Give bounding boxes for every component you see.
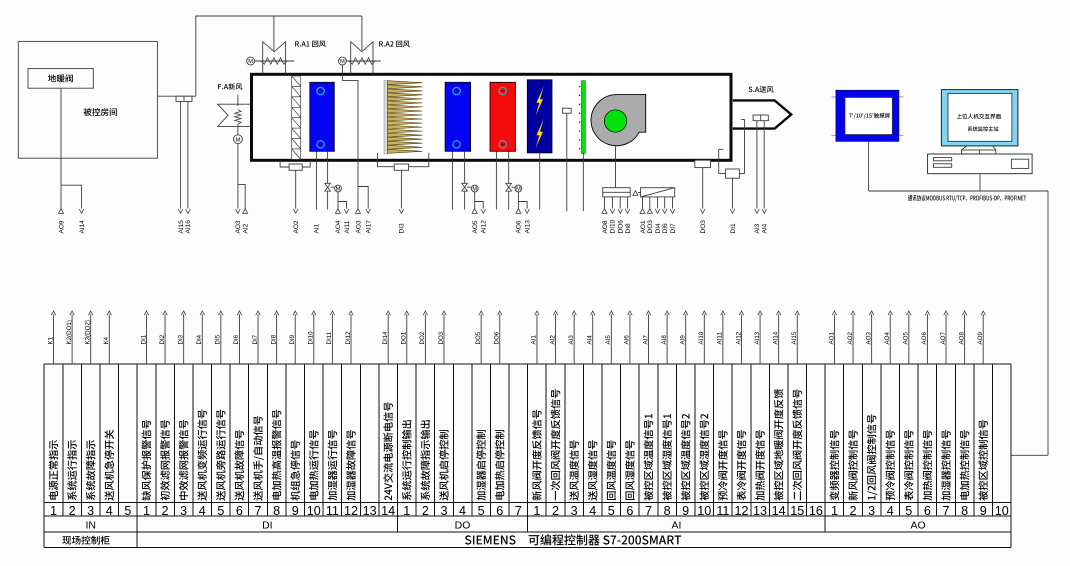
- svg-text:14: 14: [772, 504, 786, 518]
- svg-text:3: 3: [868, 504, 875, 518]
- svg-text:AO5: AO5: [903, 332, 910, 345]
- svg-text:2: 2: [850, 504, 857, 518]
- svg-text:K1: K1: [47, 336, 54, 344]
- svg-text:AO: AO: [911, 519, 926, 531]
- svg-text:AI1: AI1: [314, 223, 321, 233]
- svg-text:K4: K4: [103, 336, 110, 344]
- svg-text:5: 5: [905, 504, 912, 518]
- svg-text:AO3: AO3: [355, 220, 362, 233]
- svg-text:AO5: AO5: [472, 220, 479, 233]
- svg-text:4: 4: [106, 504, 113, 518]
- svg-text:AO1: AO1: [828, 332, 835, 345]
- svg-text:AO8: AO8: [958, 332, 965, 345]
- svg-text:1: 1: [403, 504, 410, 518]
- svg-text:DO3: DO3: [700, 220, 707, 234]
- svg-text:DI: DI: [262, 519, 273, 531]
- svg-text:M: M: [516, 187, 521, 193]
- svg-text:DI7: DI7: [670, 223, 677, 234]
- svg-text:4: 4: [459, 504, 466, 518]
- svg-text:AI8: AI8: [661, 335, 668, 345]
- svg-text:DI4: DI4: [196, 334, 203, 344]
- svg-text:AI7: AI7: [642, 335, 649, 345]
- svg-text:9: 9: [292, 504, 299, 518]
- svg-text:2: 2: [552, 504, 559, 518]
- svg-text:AO3: AO3: [865, 332, 872, 345]
- svg-text:DI5: DI5: [215, 334, 222, 344]
- svg-text:12: 12: [344, 504, 358, 518]
- svg-text:4: 4: [199, 504, 206, 518]
- svg-text:DI6: DI6: [662, 223, 669, 234]
- svg-text:DI6: DI6: [233, 334, 240, 344]
- svg-text:5: 5: [217, 504, 224, 518]
- svg-text:AI15: AI15: [178, 220, 185, 234]
- svg-text:9: 9: [682, 504, 689, 518]
- svg-text:AI15: AI15: [791, 331, 798, 344]
- svg-text:AI10: AI10: [698, 331, 705, 344]
- svg-text:8: 8: [664, 504, 671, 518]
- svg-text:AO2: AO2: [847, 332, 854, 345]
- svg-text:K3(DO2): K3(DO2): [84, 320, 91, 344]
- svg-text:AI6: AI6: [624, 335, 631, 345]
- svg-text:DI3: DI3: [177, 334, 184, 344]
- svg-text:13: 13: [753, 504, 767, 518]
- svg-text:AO4: AO4: [884, 332, 891, 345]
- svg-text:AI5: AI5: [605, 335, 612, 345]
- svg-text:AI2: AI2: [243, 223, 250, 233]
- svg-text:16: 16: [809, 504, 823, 518]
- svg-text:AI17: AI17: [366, 220, 373, 234]
- svg-text:DO3: DO3: [647, 220, 654, 234]
- svg-text:1: 1: [50, 504, 57, 518]
- svg-text:2: 2: [162, 504, 169, 518]
- svg-text:6: 6: [236, 504, 243, 518]
- svg-text:7: 7: [943, 504, 950, 518]
- svg-text:AI13: AI13: [754, 331, 761, 344]
- svg-text:6: 6: [496, 504, 503, 518]
- svg-text:AI2: AI2: [549, 335, 556, 345]
- svg-text:AO6: AO6: [516, 220, 523, 233]
- svg-text:M: M: [472, 187, 477, 193]
- svg-text:AO9: AO9: [58, 220, 65, 233]
- svg-text:AI1: AI1: [531, 335, 538, 345]
- svg-text:5: 5: [124, 504, 131, 518]
- svg-text:11: 11: [326, 504, 339, 518]
- svg-text:DI3: DI3: [399, 223, 406, 234]
- svg-text:5: 5: [608, 504, 615, 518]
- svg-text:M: M: [336, 187, 341, 193]
- svg-text:DO2: DO2: [419, 331, 426, 344]
- svg-text:1: 1: [143, 504, 150, 518]
- svg-text:15: 15: [790, 504, 804, 518]
- svg-text:DO6: DO6: [618, 220, 625, 234]
- svg-text:DI10: DI10: [308, 331, 315, 345]
- svg-text:DI9: DI9: [289, 334, 296, 344]
- svg-text:DO: DO: [455, 519, 471, 531]
- svg-text:AI14: AI14: [772, 331, 779, 344]
- svg-text:DI12: DI12: [345, 331, 352, 345]
- svg-text:4: 4: [887, 504, 894, 518]
- svg-text:DI1: DI1: [140, 334, 147, 344]
- svg-text:AO1: AO1: [640, 220, 647, 233]
- svg-text:3: 3: [87, 504, 94, 518]
- svg-text:3: 3: [180, 504, 187, 518]
- svg-text:DI8: DI8: [625, 223, 632, 234]
- svg-text:1: 1: [533, 504, 540, 518]
- svg-text:4: 4: [589, 504, 596, 518]
- svg-text:DI8: DI8: [270, 334, 277, 344]
- svg-text:AI3: AI3: [568, 335, 575, 345]
- svg-text:DO6: DO6: [494, 331, 501, 344]
- svg-text:AI4: AI4: [762, 223, 769, 233]
- svg-text:AI11: AI11: [344, 220, 351, 233]
- svg-text:DI1: DI1: [730, 223, 737, 234]
- svg-text:M: M: [248, 59, 253, 65]
- svg-text:AO4: AO4: [335, 220, 342, 233]
- svg-text:DO1: DO1: [401, 331, 408, 344]
- svg-text:AI3: AI3: [754, 223, 761, 233]
- svg-text:2: 2: [69, 504, 76, 518]
- svg-text:AO8: AO8: [602, 220, 609, 233]
- svg-text:3: 3: [571, 504, 578, 518]
- svg-text:7: 7: [515, 504, 522, 518]
- svg-text:3: 3: [440, 504, 447, 518]
- svg-text:11: 11: [716, 504, 729, 518]
- svg-text:AI16: AI16: [185, 220, 192, 234]
- svg-text:M: M: [236, 137, 241, 143]
- svg-text:9: 9: [980, 504, 987, 518]
- svg-text:DI7: DI7: [252, 334, 259, 344]
- svg-text:13: 13: [363, 504, 377, 518]
- svg-text:AI12: AI12: [735, 331, 742, 344]
- svg-text:AO7: AO7: [940, 332, 947, 345]
- svg-text:1: 1: [831, 504, 838, 518]
- svg-text:AO3: AO3: [235, 220, 242, 233]
- svg-text:6: 6: [924, 504, 931, 518]
- svg-text:K2(DO1): K2(DO1): [66, 320, 73, 344]
- svg-text:AI12: AI12: [481, 220, 488, 234]
- svg-text:AO2: AO2: [293, 220, 300, 233]
- svg-text:DI2: DI2: [159, 334, 166, 344]
- svg-text:IN: IN: [85, 519, 96, 531]
- svg-text:7: 7: [255, 504, 262, 518]
- svg-text:10: 10: [995, 504, 1009, 518]
- svg-text:AI: AI: [671, 519, 681, 531]
- svg-text:AI4: AI4: [587, 335, 594, 345]
- svg-text:AI13: AI13: [524, 220, 531, 234]
- svg-text:DO3: DO3: [438, 331, 445, 344]
- svg-text:7: 7: [645, 504, 652, 518]
- svg-text:DO5: DO5: [475, 331, 482, 344]
- svg-text:10: 10: [307, 504, 321, 518]
- svg-text:14: 14: [381, 504, 395, 518]
- svg-text:AI14: AI14: [79, 220, 86, 234]
- svg-text:DI14: DI14: [382, 331, 389, 345]
- svg-text:6: 6: [626, 504, 633, 518]
- svg-text:10: 10: [697, 504, 711, 518]
- svg-text:M: M: [340, 59, 345, 65]
- svg-text:5: 5: [478, 504, 485, 518]
- svg-text:DI10: DI10: [610, 219, 617, 233]
- svg-text:DI4: DI4: [655, 223, 662, 234]
- svg-text:8: 8: [273, 504, 280, 518]
- svg-text:AI9: AI9: [679, 335, 686, 345]
- svg-text:8: 8: [961, 504, 968, 518]
- svg-text:AO6: AO6: [921, 332, 928, 345]
- svg-text:12: 12: [734, 504, 748, 518]
- svg-text:DI11: DI11: [326, 331, 333, 344]
- svg-text:AI11: AI11: [717, 332, 724, 345]
- svg-text:AO9: AO9: [977, 332, 984, 345]
- svg-text:2: 2: [422, 504, 429, 518]
